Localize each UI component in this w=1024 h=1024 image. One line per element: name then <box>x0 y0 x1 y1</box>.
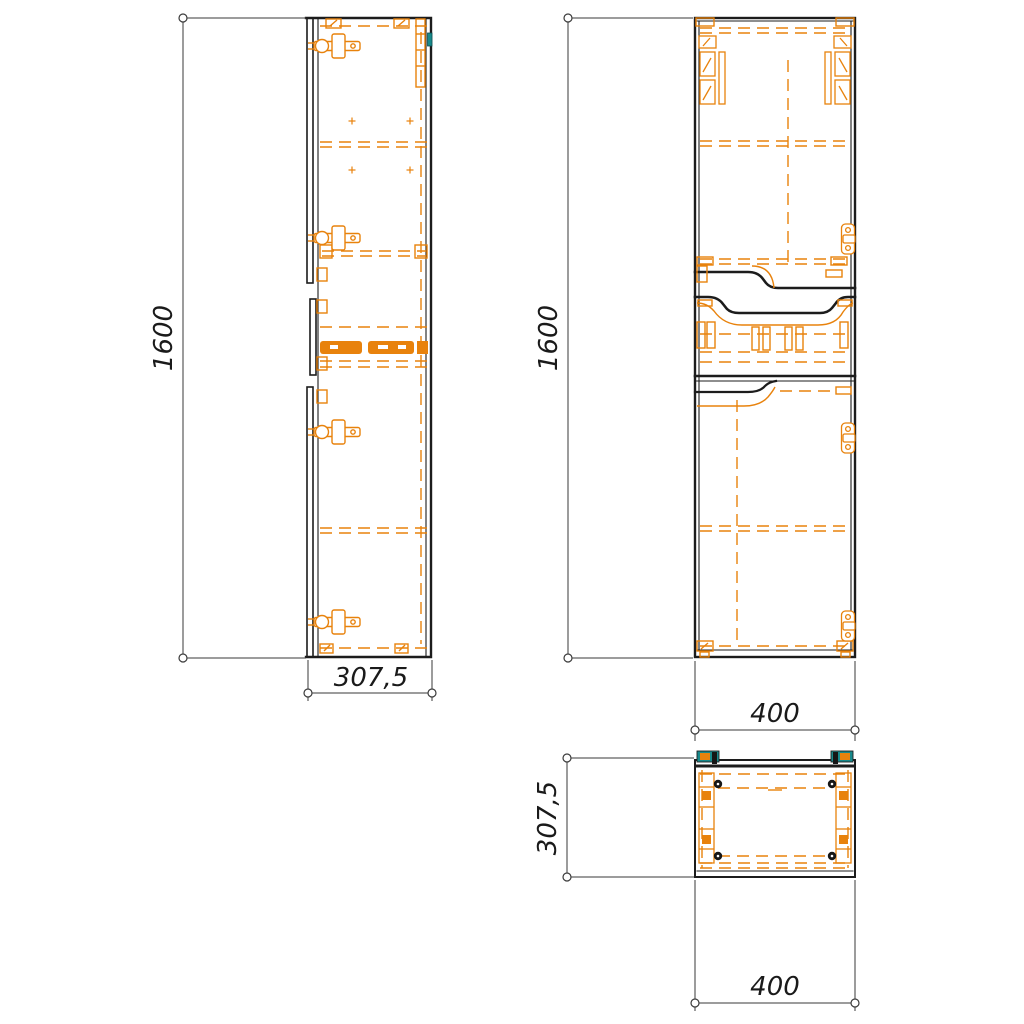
top-side-panel-right <box>836 773 851 863</box>
front-hang-bracket-right <box>825 36 851 104</box>
front-upper-door-handle-edge <box>695 272 855 288</box>
side-hidden-details <box>317 19 428 653</box>
top-hidden-details <box>700 770 850 868</box>
dim-top-depth-label: 307,5 <box>533 781 563 855</box>
side-cabinet-outline <box>306 18 431 657</box>
top-fitting-holes <box>714 780 836 860</box>
front-hinge-lower <box>842 611 856 641</box>
dim-front-height: 1600 <box>534 14 693 662</box>
front-view <box>695 18 855 657</box>
side-drawer-front-edge <box>310 299 316 375</box>
dim-top-depth: 307,5 <box>533 754 694 881</box>
dim-side-depth: 307,5 <box>304 660 436 701</box>
dim-side-depth-label: 307,5 <box>334 663 408 693</box>
front-lower-door-handle-edge <box>695 381 776 392</box>
top-wall-bracket-right <box>831 751 853 764</box>
dim-front-height-label: 1600 <box>534 305 564 371</box>
front-hang-bracket-left <box>699 36 725 104</box>
dim-top-width: 400 <box>691 880 859 1011</box>
side-upper-door-edge <box>307 18 313 283</box>
top-side-panel-left <box>699 773 714 863</box>
side-lower-door-edge <box>307 387 313 657</box>
dim-front-width: 400 <box>691 661 859 741</box>
front-cabinet-outline <box>695 18 855 657</box>
dim-top-width-label: 400 <box>750 972 800 1002</box>
side-hinge-upper-mid <box>308 226 360 250</box>
top-view <box>695 751 855 877</box>
cabinet-drawing: 1600 307,5 1600 400 307,5 <box>0 0 1024 1024</box>
drawing-sheet: 1600 307,5 1600 400 307,5 <box>0 0 1024 1024</box>
side-view <box>306 18 432 657</box>
dim-front-width-label: 400 <box>750 699 800 729</box>
front-hinge-upper <box>842 224 856 254</box>
front-hidden-details <box>696 18 854 657</box>
front-drawer-handle-edge <box>695 297 855 313</box>
top-wall-bracket-left <box>697 751 719 764</box>
front-hinge-middle <box>842 423 856 453</box>
dim-side-height: 1600 <box>149 14 306 662</box>
side-hinge-bottom <box>308 610 360 634</box>
dim-side-height-label: 1600 <box>149 305 179 371</box>
side-hinge-top <box>308 34 360 58</box>
side-hinge-lower-mid <box>308 420 360 444</box>
side-wall-bracket <box>428 33 433 46</box>
